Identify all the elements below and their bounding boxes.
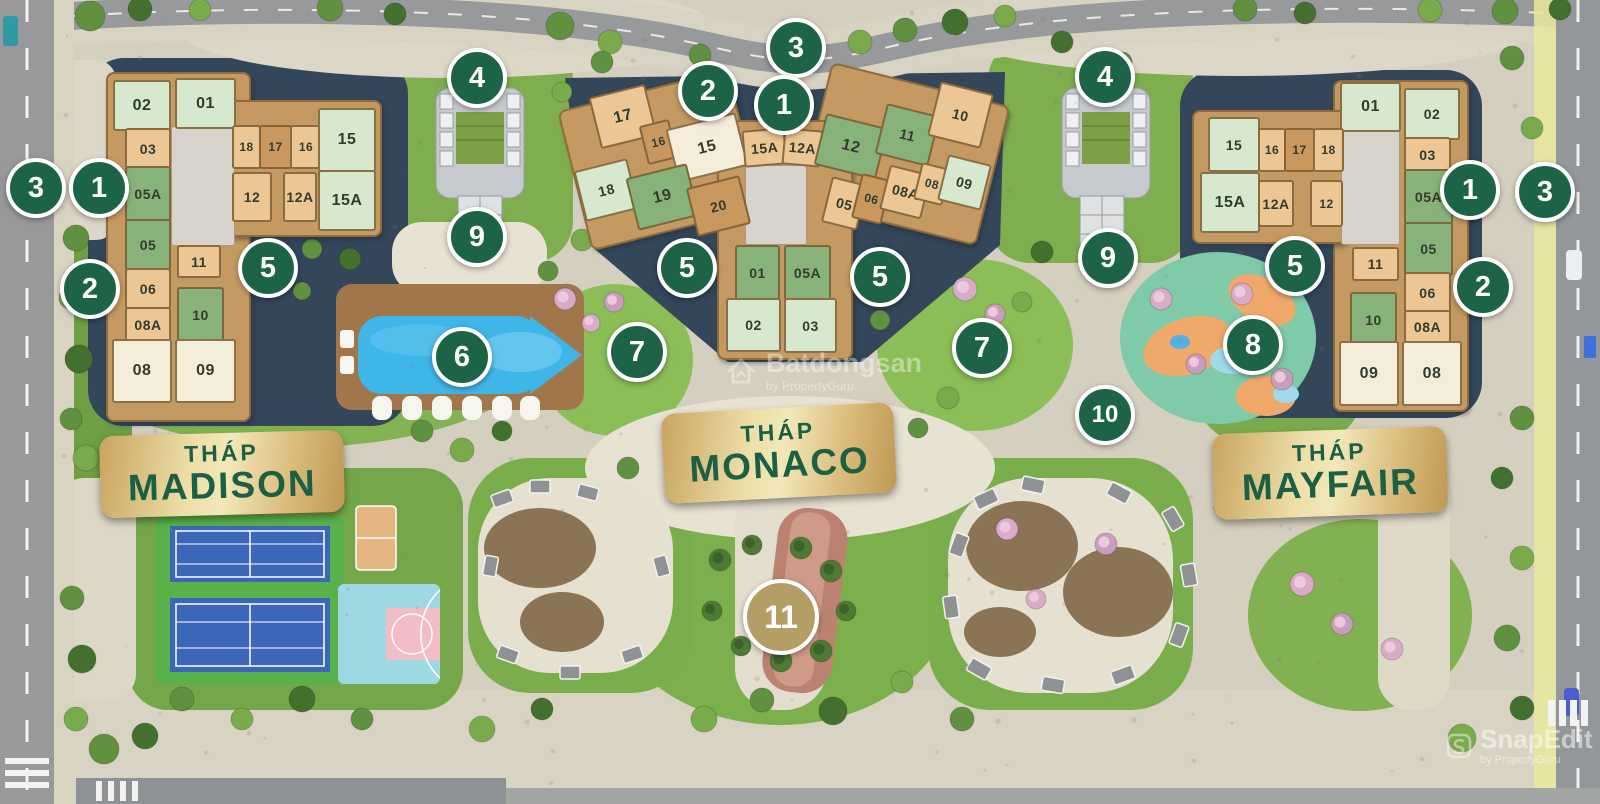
unit-madison-15: 15 [318, 108, 376, 172]
amenity-marker-number: 2 [700, 75, 716, 108]
unit-mayfair-03: 03 [1404, 137, 1451, 172]
madison-banner-prefix: THÁP [184, 440, 259, 467]
unit-madison-12A: 12A [283, 172, 317, 222]
unit-number: 06 [1419, 285, 1436, 301]
amenity-marker-number: 3 [28, 172, 44, 205]
unit-number: 03 [140, 141, 157, 157]
unit-number: 17 [1292, 143, 1306, 157]
madison-banner-name: MADISON [127, 464, 317, 510]
amenity-marker-4-15: 4 [1075, 47, 1135, 107]
amenity-marker-number: 3 [788, 32, 804, 65]
unit-mayfair-08A: 08A [1404, 310, 1451, 343]
unit-number: 12 [1319, 197, 1333, 211]
unit-number: 11 [191, 254, 207, 270]
unit-number: 12A [1262, 196, 1289, 212]
unit-number: 01 [1361, 98, 1380, 116]
unit-madison-05: 05 [125, 219, 171, 271]
unit-number: 16 [650, 133, 667, 150]
mayfair-banner-name: MAYFAIR [1241, 462, 1419, 509]
unit-number: 09 [196, 362, 215, 380]
amenity-marker-number: 1 [776, 89, 792, 122]
unit-number: 05 [1420, 241, 1437, 257]
unit-mayfair-10: 10 [1350, 292, 1397, 347]
amenity-marker-number: 10 [1092, 401, 1119, 429]
unit-madison-09: 09 [175, 339, 236, 403]
unit-number: 15A [750, 138, 778, 156]
unit-number: 01 [749, 265, 766, 281]
unit-mayfair-02: 02 [1404, 88, 1460, 140]
unit-madison-05A: 05A [125, 166, 171, 222]
amenity-marker-number: 5 [872, 261, 888, 294]
unit-number: 10 [1365, 312, 1382, 328]
amenity-marker-number: 11 [764, 599, 798, 636]
unit-number: 16 [299, 140, 313, 154]
amenity-marker-number: 4 [469, 62, 485, 95]
amenity-marker-number: 3 [1537, 176, 1553, 209]
unit-number: 06 [140, 281, 157, 297]
amenity-marker-3-9: 3 [766, 18, 826, 78]
unit-madison-08: 08 [112, 339, 172, 403]
unit-mayfair-05: 05 [1404, 222, 1453, 276]
unit-number: 11 [898, 125, 917, 144]
amenity-marker-9-5: 9 [447, 207, 507, 267]
unit-mayfair-06: 06 [1404, 272, 1451, 314]
unit-number: 12A [286, 189, 313, 205]
unit-number: 11 [1368, 256, 1384, 272]
unit-mayfair-15: 15 [1208, 117, 1260, 172]
unit-mayfair-15A: 15A [1200, 172, 1260, 233]
amenity-marker-number: 7 [629, 336, 645, 369]
amenity-marker-number: 2 [82, 273, 98, 306]
madison-corridor [171, 126, 235, 246]
unit-number: 02 [745, 317, 762, 333]
unit-number: 12 [840, 135, 863, 157]
unit-madison-01: 01 [175, 78, 236, 129]
amenity-marker-number: 9 [469, 221, 485, 254]
unit-number: 15 [1226, 137, 1243, 153]
unit-number: 05A [794, 265, 821, 281]
unit-madison-02: 02 [113, 80, 171, 131]
amenity-marker-3-21: 3 [1515, 162, 1575, 222]
unit-mayfair-11: 11 [1352, 247, 1399, 281]
mayfair-tower-banner: THÁP MAYFAIR [1212, 426, 1449, 520]
unit-mayfair-17: 17 [1284, 128, 1315, 172]
unit-mayfair-08: 08 [1402, 341, 1462, 406]
amenity-marker-number: 8 [1245, 329, 1261, 362]
unit-number: 02 [133, 97, 152, 115]
unit-number: 20 [709, 196, 729, 216]
unit-number: 05A [1415, 189, 1442, 205]
amenity-marker-7-7: 7 [607, 322, 667, 382]
amenity-marker-5-18: 5 [1265, 236, 1325, 296]
amenity-marker-number: 5 [260, 252, 276, 285]
unit-madison-11: 11 [177, 245, 221, 278]
masterplan-map: 0201031817161505A1212A15A0511061008A0809… [0, 0, 1600, 804]
unit-number: 10 [192, 307, 209, 323]
monaco-tower-banner: THÁP MONACO [661, 402, 897, 504]
unit-number: 16 [1265, 143, 1279, 157]
unit-mayfair-16: 16 [1258, 128, 1286, 172]
unit-number: 15A [332, 192, 363, 210]
unit-number: 18 [1321, 143, 1335, 157]
amenity-marker-number: 5 [1287, 250, 1303, 283]
amenity-marker-number: 2 [1475, 271, 1491, 304]
monaco-corridor [745, 165, 807, 245]
unit-madison-03: 03 [125, 128, 171, 169]
amenity-marker-number: 6 [454, 341, 470, 374]
amenity-marker-number: 7 [974, 332, 990, 365]
amenity-marker-7-13: 7 [952, 318, 1012, 378]
unit-number: 08 [133, 362, 152, 380]
amenity-marker-11-22: 11 [743, 579, 819, 655]
unit-number: 18 [239, 140, 253, 154]
unit-monaco-01: 01 [735, 245, 780, 301]
unit-madison-10: 10 [177, 287, 224, 342]
unit-monaco-02: 02 [726, 298, 781, 352]
unit-madison-08A: 08A [125, 307, 171, 342]
unit-mayfair-12: 12 [1310, 180, 1343, 227]
amenity-marker-5-3: 5 [238, 238, 298, 298]
unit-number: 12A [788, 138, 816, 156]
unit-number: 09 [1360, 365, 1379, 383]
unit-number: 17 [612, 105, 635, 127]
amenity-marker-number: 4 [1097, 61, 1113, 94]
amenity-marker-number: 1 [1462, 174, 1478, 207]
amenity-marker-3-0: 3 [6, 158, 66, 218]
unit-number: 06 [863, 190, 880, 207]
amenity-marker-1-10: 1 [754, 75, 814, 135]
unit-number: 08 [1423, 365, 1442, 383]
amenity-marker-1-1: 1 [69, 158, 129, 218]
unit-number: 12 [244, 189, 261, 205]
unit-mayfair-09: 09 [1339, 341, 1399, 406]
amenity-marker-number: 1 [91, 172, 107, 205]
unit-number: 05 [140, 237, 157, 253]
unit-number: 09 [955, 173, 975, 193]
unit-madison-12: 12 [232, 172, 272, 222]
unit-monaco-03: 03 [784, 298, 837, 353]
madison-tower-banner: THÁP MADISON [99, 430, 345, 518]
unit-number: 08A [134, 317, 161, 333]
unit-mayfair-01: 01 [1340, 82, 1401, 132]
unit-madison-06: 06 [125, 268, 171, 310]
unit-number: 03 [802, 318, 819, 334]
amenity-marker-6-6: 6 [432, 327, 492, 387]
unit-mayfair-18: 18 [1313, 128, 1344, 172]
unit-number: 15A [1215, 194, 1246, 212]
unit-number: 08A [1414, 319, 1441, 335]
amenity-marker-1-19: 1 [1440, 160, 1500, 220]
mayfair-corridor [1341, 128, 1400, 245]
amenity-marker-8-17: 8 [1223, 315, 1283, 375]
amenity-marker-2-8: 2 [678, 61, 738, 121]
unit-number: 05A [134, 186, 161, 202]
unit-monaco-05A: 05A [784, 245, 831, 301]
amenity-marker-5-12: 5 [850, 247, 910, 307]
unit-number: 01 [196, 95, 215, 113]
amenity-marker-10-16: 10 [1075, 385, 1135, 445]
unit-number: 03 [1419, 147, 1436, 163]
unit-number: 08 [923, 175, 940, 192]
monaco-banner-name: MONACO [688, 441, 870, 491]
amenity-marker-number: 5 [679, 252, 695, 285]
unit-number: 17 [268, 140, 282, 154]
unit-number: 15 [696, 136, 719, 158]
unit-madison-17: 17 [259, 125, 292, 169]
unit-number: 15 [338, 131, 357, 149]
amenity-marker-5-11: 5 [657, 238, 717, 298]
amenity-marker-4-4: 4 [447, 48, 507, 108]
unit-number: 18 [597, 180, 617, 200]
amenity-marker-2-20: 2 [1453, 257, 1513, 317]
amenity-marker-number: 9 [1100, 242, 1116, 275]
unit-mayfair-12A: 12A [1258, 180, 1294, 227]
unit-number: 10 [951, 105, 971, 125]
unit-madison-15A: 15A [318, 170, 376, 231]
amenity-marker-2-2: 2 [60, 259, 120, 319]
unit-number: 19 [651, 186, 674, 208]
unit-number: 02 [1424, 106, 1441, 122]
unit-madison-18: 18 [232, 125, 261, 169]
amenity-marker-9-14: 9 [1078, 228, 1138, 288]
